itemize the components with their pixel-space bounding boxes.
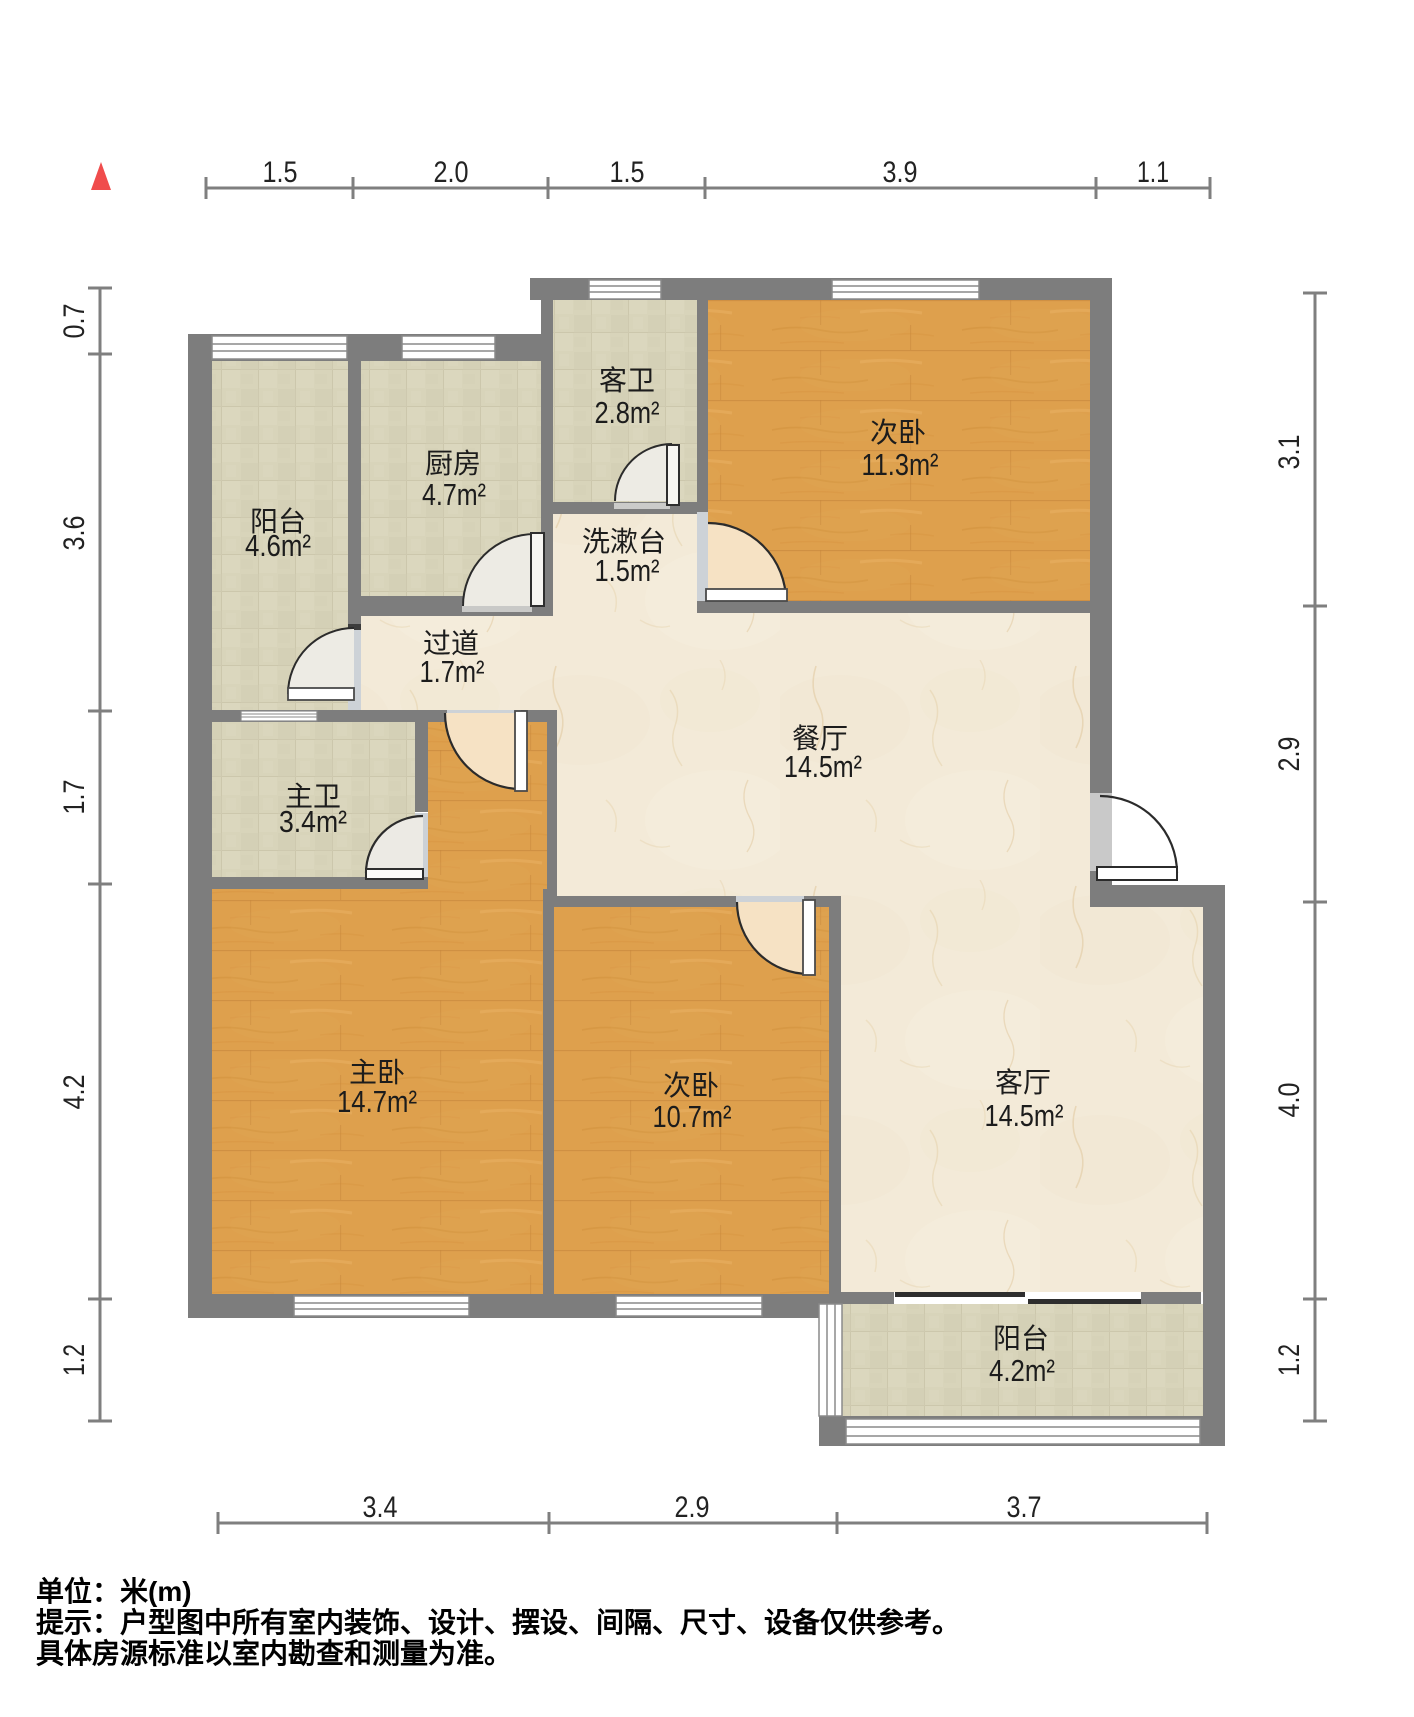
svg-text:客厅: 客厅: [995, 1067, 1051, 1098]
svg-text:3.4m²: 3.4m²: [279, 804, 347, 839]
svg-text:14.7m²: 14.7m²: [337, 1084, 417, 1119]
svg-text:1.5m²: 1.5m²: [595, 553, 660, 588]
svg-text:1.7: 1.7: [58, 780, 91, 815]
svg-text:2.8m²: 2.8m²: [595, 395, 660, 430]
svg-text:具体房源标准以室内勘查和测量为准。: 具体房源标准以室内勘查和测量为准。: [36, 1637, 512, 1669]
svg-text:4.7m²: 4.7m²: [422, 477, 486, 512]
svg-text:单位：米(m): 单位：米(m): [36, 1575, 192, 1607]
svg-text:1.2: 1.2: [1273, 1344, 1306, 1376]
svg-text:阳台: 阳台: [993, 1323, 1049, 1354]
svg-text:3.1: 3.1: [1273, 435, 1306, 470]
svg-text:4.2m²: 4.2m²: [989, 1353, 1055, 1388]
svg-text:4.2: 4.2: [58, 1075, 91, 1110]
svg-text:4.0: 4.0: [1273, 1083, 1306, 1118]
svg-text:10.7m²: 10.7m²: [653, 1099, 732, 1134]
svg-text:2.9: 2.9: [675, 1491, 710, 1524]
svg-text:1.7m²: 1.7m²: [420, 654, 485, 689]
svg-text:4.6m²: 4.6m²: [245, 528, 311, 563]
svg-text:3.9: 3.9: [883, 156, 918, 189]
svg-text:2.0: 2.0: [434, 156, 469, 189]
svg-text:2.9: 2.9: [1273, 737, 1306, 772]
svg-text:14.5m²: 14.5m²: [784, 749, 862, 784]
svg-text:14.5m²: 14.5m²: [985, 1098, 1064, 1133]
svg-text:次卧: 次卧: [663, 1070, 719, 1101]
svg-text:客卫: 客卫: [599, 365, 655, 396]
svg-text:3.4: 3.4: [363, 1491, 398, 1524]
svg-text:1.1: 1.1: [1137, 156, 1169, 189]
svg-text:0.7: 0.7: [58, 304, 91, 339]
svg-text:厨房: 厨房: [425, 448, 481, 479]
svg-text:提示：户型图中所有室内装饰、设计、摆设、间隔、尺寸、设备仅供: 提示：户型图中所有室内装饰、设计、摆设、间隔、尺寸、设备仅供参考。: [36, 1606, 960, 1638]
svg-text:3.6: 3.6: [58, 516, 91, 551]
svg-text:1.5: 1.5: [610, 156, 645, 189]
svg-text:3.7: 3.7: [1007, 1491, 1042, 1524]
svg-text:11.3m²: 11.3m²: [862, 447, 939, 482]
svg-text:次卧: 次卧: [870, 417, 926, 448]
svg-text:1.2: 1.2: [58, 1344, 91, 1376]
svg-text:1.5: 1.5: [263, 156, 298, 189]
